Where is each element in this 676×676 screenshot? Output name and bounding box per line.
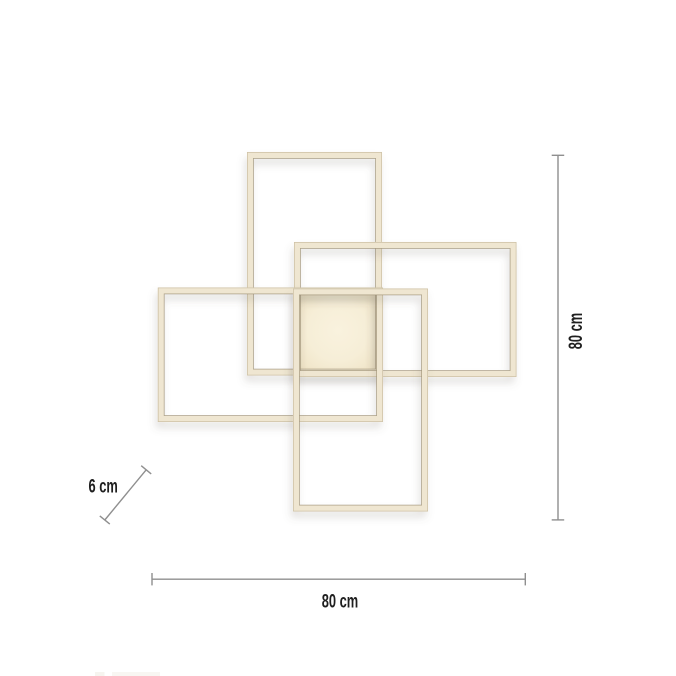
svg-text:80 cm: 80 cm — [564, 313, 586, 349]
svg-text:80 cm: 80 cm — [322, 590, 358, 612]
svg-text:6 cm: 6 cm — [89, 475, 118, 497]
